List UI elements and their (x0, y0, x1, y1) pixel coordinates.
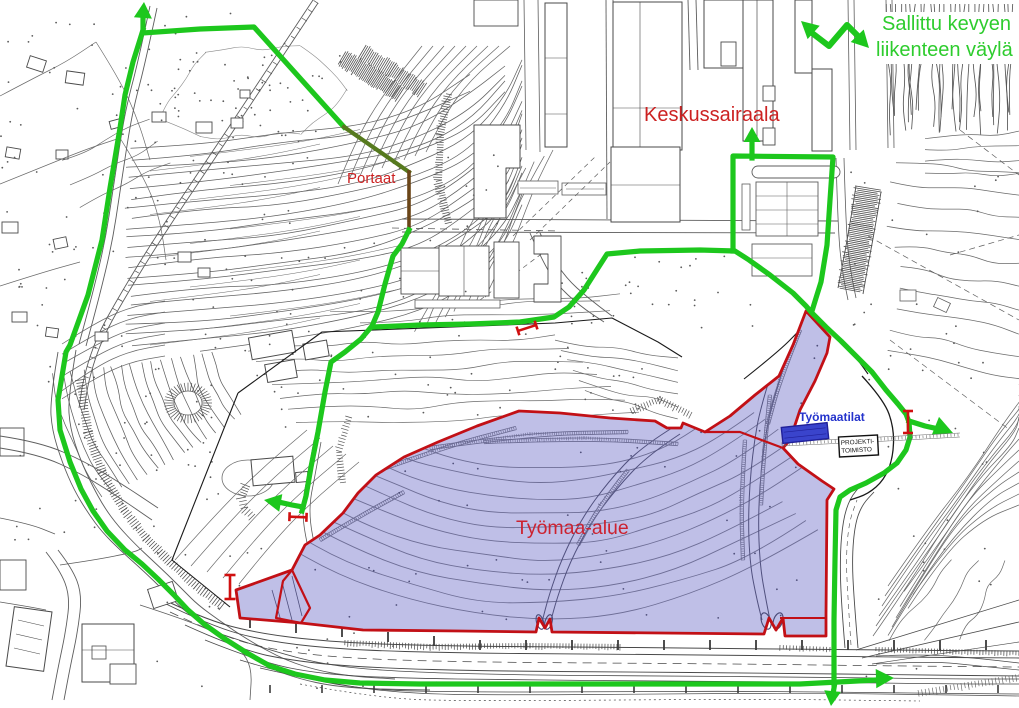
svg-text:Työmaa-alue: Työmaa-alue (516, 517, 629, 539)
svg-text:Keskussairaala: Keskussairaala (644, 104, 781, 126)
svg-text:Portaat: Portaat (347, 170, 396, 187)
svg-text:liikenteen väylä: liikenteen väylä (876, 39, 1014, 61)
svg-text:Sallittu kevyen: Sallittu kevyen (882, 13, 1011, 35)
svg-text:Työmaatilat: Työmaatilat (799, 410, 865, 424)
